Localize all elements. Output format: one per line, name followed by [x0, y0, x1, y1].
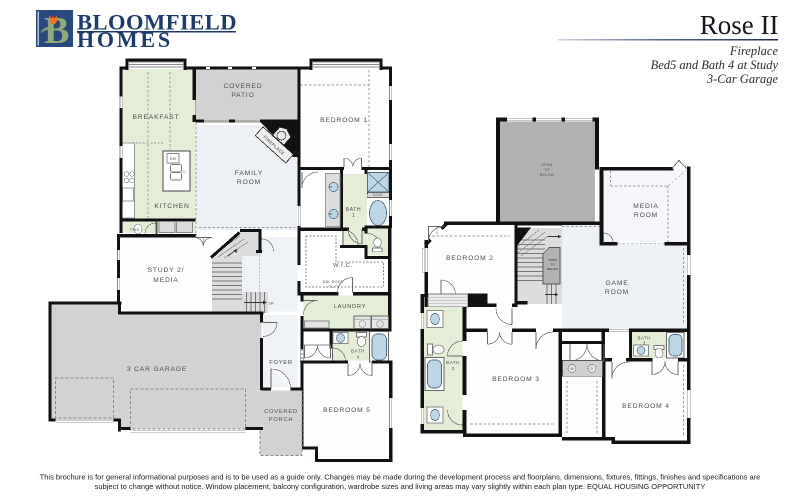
svg-text:BEDROOM 2: BEDROOM 2	[446, 255, 494, 262]
svg-text:KITCHEN: KITCHEN	[154, 203, 189, 210]
svg-text:TO: TO	[544, 168, 550, 172]
svg-text:3-Car Garage: 3-Car Garage	[706, 72, 779, 86]
svg-text:BELOW: BELOW	[540, 173, 555, 177]
svg-text:Rose II: Rose II	[700, 10, 779, 40]
svg-text:subject to change without noti: subject to change without notice. Window…	[95, 482, 706, 491]
svg-text:ROOM: ROOM	[634, 212, 658, 219]
svg-text:UP: UP	[269, 302, 274, 306]
svg-text:4: 4	[357, 355, 360, 360]
svg-text:MEDIA: MEDIA	[633, 203, 658, 210]
svg-text:SEAT: SEAT	[373, 193, 384, 197]
svg-text:MEDIA: MEDIA	[153, 277, 178, 284]
svg-text:ROOM: ROOM	[237, 179, 261, 186]
svg-text:GAME: GAME	[605, 280, 628, 287]
svg-text:PORCH: PORCH	[269, 417, 293, 423]
svg-text:BEDROOM 1: BEDROOM 1	[320, 117, 368, 124]
svg-text:BEDROOM 4: BEDROOM 4	[622, 403, 670, 410]
svg-text:OPEN: OPEN	[548, 258, 557, 262]
svg-text:DW: DW	[170, 157, 177, 161]
svg-text:LAUNDRY: LAUNDRY	[334, 304, 367, 310]
svg-text:1: 1	[352, 213, 355, 219]
svg-text:FAMILY: FAMILY	[235, 170, 263, 177]
svg-text:OPEN: OPEN	[541, 163, 552, 167]
svg-text:D: D	[591, 367, 594, 371]
svg-text:W.I.C.: W.I.C.	[333, 263, 353, 269]
svg-text:W: W	[570, 367, 574, 371]
svg-text:Fireplace: Fireplace	[729, 44, 779, 58]
svg-text:BATH: BATH	[446, 360, 460, 365]
svg-text:3 CAR GARAGE: 3 CAR GARAGE	[127, 366, 187, 373]
svg-text:PATIO: PATIO	[231, 92, 254, 99]
svg-text:BEDROOM 5: BEDROOM 5	[323, 407, 371, 414]
svg-text:COVERED: COVERED	[264, 409, 298, 415]
svg-text:PWD: PWD	[130, 228, 139, 232]
svg-text:BELOW: BELOW	[547, 267, 558, 271]
svg-text:BEDROOM 3: BEDROOM 3	[492, 376, 540, 383]
svg-text:TO: TO	[550, 263, 555, 267]
svg-text:HOMES: HOMES	[77, 27, 173, 52]
svg-text:BATH: BATH	[351, 349, 365, 354]
svg-text:COVERED: COVERED	[223, 83, 262, 90]
svg-text:ROOM: ROOM	[605, 289, 629, 296]
svg-text:2: 2	[452, 366, 455, 371]
svg-text:STUDY 2/: STUDY 2/	[148, 267, 185, 274]
svg-text:Bed5 and Bath 4 at Study: Bed5 and Bath 4 at Study	[651, 58, 779, 72]
svg-text:This brochure is for general i: This brochure is for general information…	[40, 473, 761, 482]
svg-text:FOYER: FOYER	[269, 360, 292, 366]
svg-text:BREAKFAST: BREAKFAST	[132, 114, 179, 121]
